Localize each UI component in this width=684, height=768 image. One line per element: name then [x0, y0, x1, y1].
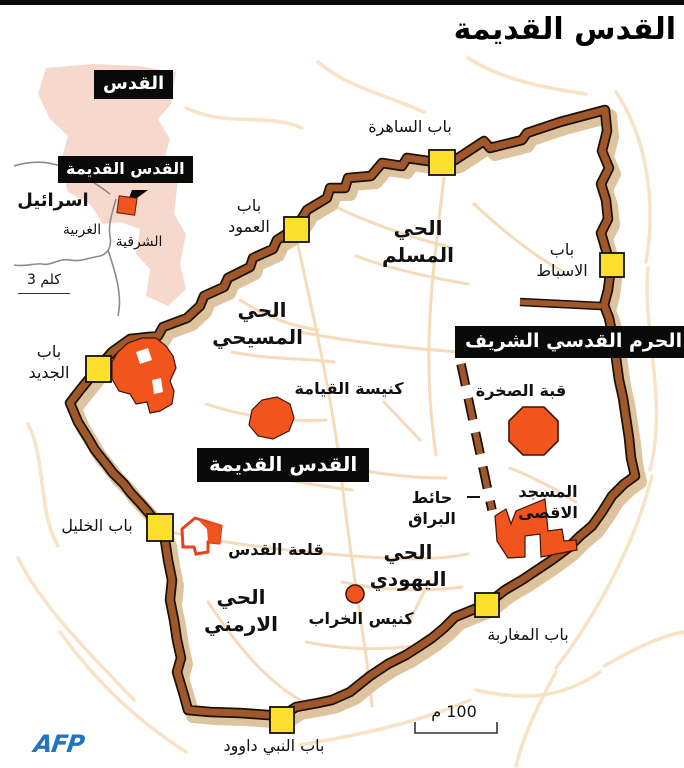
gate-label-damascus: باب العمود: [216, 195, 282, 237]
gate-label-zion: باب النبي داوود: [194, 735, 354, 756]
dome-of-rock-shape: [509, 407, 558, 455]
gate-label-dung: باب المغاربة: [458, 624, 598, 645]
landmark-label-dome-of-rock: قبة الصخرة: [470, 380, 572, 401]
landmark-label-hurva: كنيس الخراب: [296, 608, 426, 629]
inset-jerusalem-label: القدس: [94, 70, 173, 99]
gate-marker-new: [86, 356, 111, 382]
top-rule: [0, 0, 684, 5]
scale-bracket: [415, 722, 497, 733]
landmark-label-al-aqsa: المسجد الاقصى: [486, 481, 610, 523]
gate-label-jaffa: باب الخليل: [50, 515, 144, 536]
page-title: القدس القديمة: [276, 12, 676, 47]
haram-al-sharif-label: الحرم القدسي الشريف: [455, 326, 684, 358]
quarter-label-muslim: الحي المسلم: [358, 215, 478, 269]
inset-east-jerusalem-label: الشرقية: [108, 232, 170, 253]
inset-scale-label: 3 كلم: [18, 270, 70, 294]
inset-old-city-square: [117, 196, 137, 215]
gate-marker-zion: [270, 707, 294, 733]
quarter-label-armenian: الحي الارمني: [204, 584, 278, 638]
map-scale-label: 100 م: [408, 701, 500, 722]
gate-label-lions: باب الاسباط: [527, 239, 597, 281]
inset-israel-label: اسرائيل: [16, 190, 90, 211]
quarter-label-jewish: الحي اليهودي: [350, 539, 466, 593]
quarter-label-christian: الحي المسيحي: [221, 297, 303, 351]
gate-marker-jaffa: [147, 514, 173, 541]
old-city-label: القدس القديمة: [197, 448, 369, 482]
inset-old-city-label: القدس القديمة: [58, 156, 193, 183]
afp-logo: AFP: [32, 730, 85, 758]
gate-label-herod: باب الساهرة: [346, 116, 474, 137]
inset-locator-map: القدس القدس القديمة اسرائيل الغربية الشر…: [8, 64, 200, 316]
gate-marker-damascus: [284, 217, 309, 242]
landmark-label-citadel: قلعة القدس: [214, 539, 338, 560]
gate-marker-dung: [475, 593, 499, 617]
gate-marker-lions: [600, 253, 624, 277]
inset-west-jerusalem-label: الغربية: [52, 220, 112, 241]
holy-sepulchre-shape: [249, 397, 294, 439]
landmark-label-buraq-wall: حائط البراق: [390, 487, 474, 529]
landmark-label-holy-sepulchre: كنيسة القيامة: [288, 378, 410, 399]
gate-label-new: باب الجديد: [20, 341, 78, 383]
gate-marker-herod: [429, 150, 455, 175]
new-gate-complex-shape: [112, 338, 176, 413]
